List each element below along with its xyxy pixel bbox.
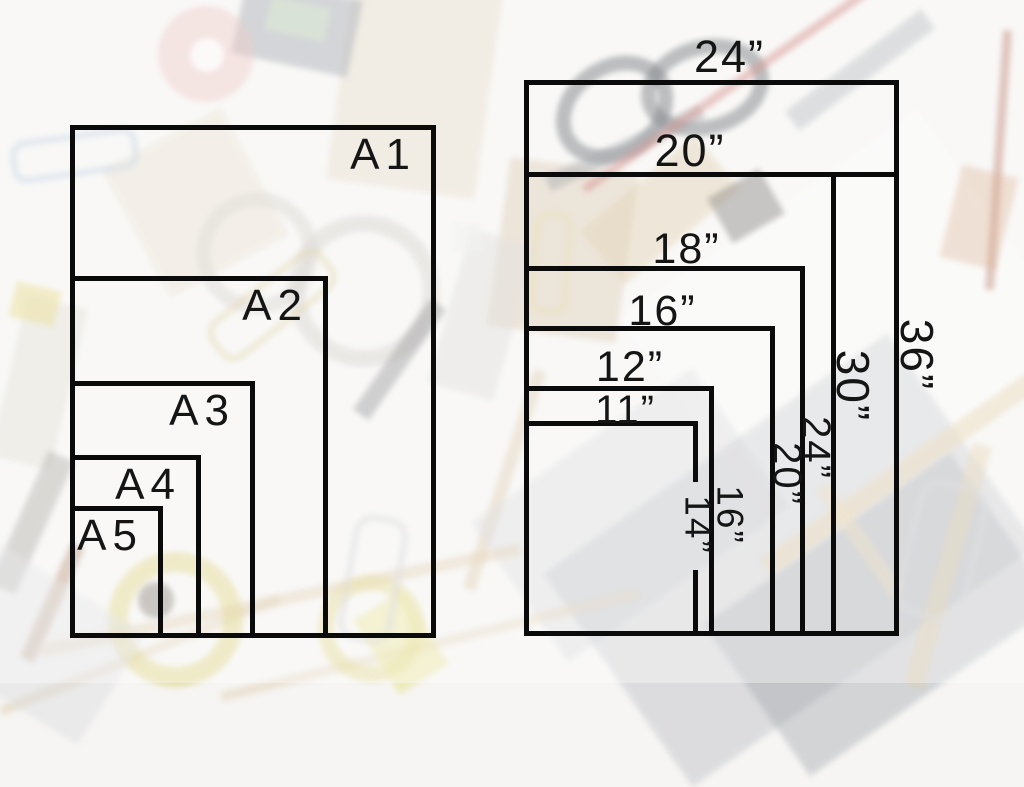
line-segment (693, 421, 698, 482)
width-label-16in: 16” (628, 289, 696, 334)
width-label-24in: 24” (694, 33, 765, 80)
a5-label: A5 (77, 514, 143, 558)
bg-paintbrush-ferrule (0, 451, 74, 595)
height-label-30in: 30” (830, 350, 876, 422)
bg-paper-clip (889, 473, 995, 628)
bg-brush-handle (985, 30, 1012, 290)
height-label-14in: 14” (680, 495, 717, 554)
bg-washi-tape-hole (190, 38, 224, 72)
bg-calculator (231, 0, 363, 77)
a5-rect: A5 (70, 506, 163, 638)
bg-brush-bristles (939, 164, 1018, 270)
paper-size-comparison-diagram: A1 A2 A3 A4 A5 24” 20” 18” 16” 12” 11” 3… (0, 0, 1024, 683)
a1-label: A1 (350, 133, 416, 177)
a3-label: A3 (169, 389, 235, 433)
size-11x14-rect: 11” (524, 421, 698, 636)
width-label-11in: 11” (595, 389, 656, 431)
bg-calculator-screen (265, 0, 331, 42)
bg-paint-tube (427, 229, 536, 402)
bg-paint-tube-cap (452, 222, 482, 252)
width-label-18in: 18” (652, 227, 720, 272)
bg-washi-tape-roll (158, 6, 254, 102)
bg-easel-leg (904, 442, 992, 688)
height-label-36in: 36” (894, 319, 940, 391)
height-label-20in: 20” (767, 442, 807, 506)
width-label-12in: 12” (596, 345, 664, 390)
width-label-20in: 20” (654, 127, 725, 174)
a4-label: A4 (115, 463, 181, 507)
bg-yellow-cap (9, 281, 62, 326)
a2-label: A2 (242, 284, 308, 328)
line-segment (693, 570, 698, 636)
line-segment (831, 172, 899, 177)
